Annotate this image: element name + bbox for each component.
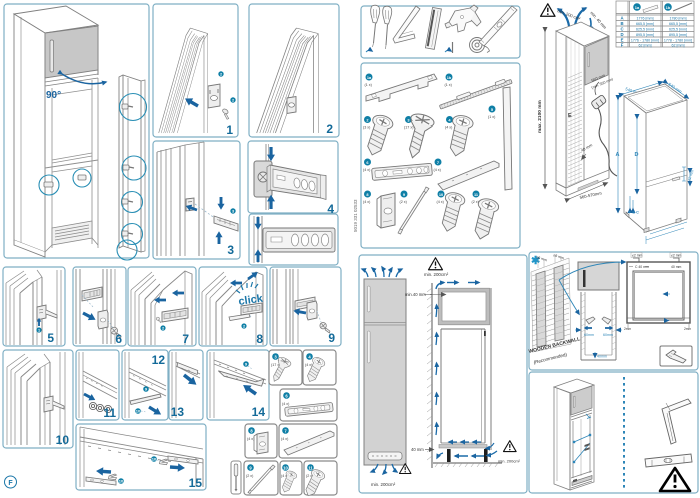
svg-text:(4 x): (4 x) <box>437 200 444 204</box>
svg-text:11: 11 <box>308 466 313 471</box>
svg-text:(4 x): (4 x) <box>281 437 288 441</box>
svg-text:9: 9 <box>328 331 335 345</box>
svg-text:E: E <box>568 113 572 119</box>
svg-text:C 40 mm: C 40 mm <box>635 265 649 269</box>
svg-text:A: A <box>616 152 620 158</box>
svg-text:3: 3 <box>227 243 234 257</box>
svg-text:(1 x): (1 x) <box>445 83 452 87</box>
svg-text:1780 [mm]: 1780 [mm] <box>670 16 687 20</box>
svg-text:5: 5 <box>47 331 54 345</box>
svg-text:(4 x): (4 x) <box>282 402 289 406</box>
svg-text:F B C: F B C <box>629 211 639 215</box>
svg-text:10: 10 <box>119 479 124 484</box>
svg-text:1778 - 1780 [mm]: 1778 - 1780 [mm] <box>664 38 692 42</box>
svg-text:40 mm: 40 mm <box>671 265 682 269</box>
svg-text:10: 10 <box>136 409 141 414</box>
svg-text:90°: 90° <box>46 90 61 101</box>
svg-text:(4 x): (4 x) <box>247 437 254 441</box>
svg-text:40 mm: 40 mm <box>411 447 424 452</box>
svg-text:2: 2 <box>162 327 164 331</box>
svg-text:(4 x): (4 x) <box>445 126 452 130</box>
svg-text:6: 6 <box>115 332 122 346</box>
svg-text:(4 x): (4 x) <box>434 168 441 172</box>
svg-text:(1 x): (1 x) <box>488 115 495 119</box>
svg-text:625,5 [mm]: 625,5 [mm] <box>636 27 654 31</box>
svg-text:max. 2100 mm: max. 2100 mm <box>537 100 543 133</box>
svg-text:2: 2 <box>326 122 333 136</box>
svg-text:665,5 [mm]: 665,5 [mm] <box>669 22 687 26</box>
svg-text:4: 4 <box>327 202 334 216</box>
svg-text:625,5 [mm]: 625,5 [mm] <box>669 27 687 31</box>
svg-text:A: A <box>620 16 623 21</box>
svg-text:min. 200cm²: min. 200cm² <box>424 272 449 277</box>
svg-text:10: 10 <box>56 433 70 447</box>
svg-text:(4 x): (4 x) <box>363 168 370 172</box>
svg-text:≤2 mm: ≤2 mm <box>632 254 643 258</box>
svg-text:7: 7 <box>182 332 189 346</box>
svg-text:1b: 1b <box>447 75 452 80</box>
svg-text:C: C <box>620 27 623 32</box>
svg-text:14: 14 <box>252 405 266 419</box>
svg-text:(2 x): (2 x) <box>246 474 253 478</box>
svg-text:3: 3 <box>232 210 234 214</box>
svg-text:≤2 mm: ≤2 mm <box>671 254 682 258</box>
svg-text:F: F <box>621 43 624 48</box>
svg-text:(4 x): (4 x) <box>305 363 312 367</box>
svg-text:895,5 [mm]: 895,5 [mm] <box>636 33 654 37</box>
svg-text:(3 x): (3 x) <box>363 126 370 130</box>
svg-text:1776 [mm]: 1776 [mm] <box>637 16 654 20</box>
svg-text:10: 10 <box>152 457 157 462</box>
svg-text:11: 11 <box>103 406 116 420</box>
svg-text:665,5 [mm]: 665,5 [mm] <box>636 22 654 26</box>
svg-text:62 [mm]: 62 [mm] <box>639 43 652 47</box>
svg-text:1: 1 <box>38 329 40 333</box>
svg-text:1a: 1a <box>635 5 640 10</box>
svg-text:2: 2 <box>220 73 222 77</box>
svg-text:895,5 [mm]: 895,5 [mm] <box>669 33 687 37</box>
svg-text:5019 331 02533: 5019 331 02533 <box>353 199 358 232</box>
svg-text:min.40 mm: min.40 mm <box>405 292 426 297</box>
svg-text:(17 x): (17 x) <box>404 126 413 130</box>
svg-text:8: 8 <box>256 332 263 346</box>
svg-text:(4 x): (4 x) <box>363 200 370 204</box>
svg-text:1b: 1b <box>666 5 671 10</box>
svg-text:62 [mm]: 62 [mm] <box>672 43 685 47</box>
svg-text:(2 x): (2 x) <box>472 200 479 204</box>
svg-text:D: D <box>635 152 639 158</box>
svg-text:1: 1 <box>226 123 233 137</box>
svg-text:2mm: 2mm <box>624 327 631 331</box>
svg-text:min. 200cm²: min. 200cm² <box>498 459 521 464</box>
svg-text:13: 13 <box>171 405 185 419</box>
svg-text:2: 2 <box>232 99 234 103</box>
svg-text:40mm: 40mm <box>597 355 607 359</box>
svg-text:7: 7 <box>437 160 439 165</box>
svg-text:D: D <box>620 32 623 37</box>
svg-text:(2 x): (2 x) <box>400 200 407 204</box>
svg-text:1776 - 1780 [mm]: 1776 - 1780 [mm] <box>631 38 659 42</box>
svg-text:10: 10 <box>439 192 443 197</box>
svg-text:min. 200cm²: min. 200cm² <box>371 482 396 487</box>
svg-text:60mm: 60mm <box>584 333 594 337</box>
svg-text:2: 2 <box>243 325 245 329</box>
svg-text:15: 15 <box>189 476 203 490</box>
svg-text:F: F <box>8 480 13 487</box>
svg-text:(1 x): (1 x) <box>365 83 372 87</box>
svg-text:2mm: 2mm <box>684 327 691 331</box>
svg-text:10: 10 <box>283 466 288 471</box>
svg-text:60mm: 60mm <box>603 333 613 337</box>
svg-text:12: 12 <box>152 353 166 367</box>
svg-text:B: B <box>620 21 623 26</box>
